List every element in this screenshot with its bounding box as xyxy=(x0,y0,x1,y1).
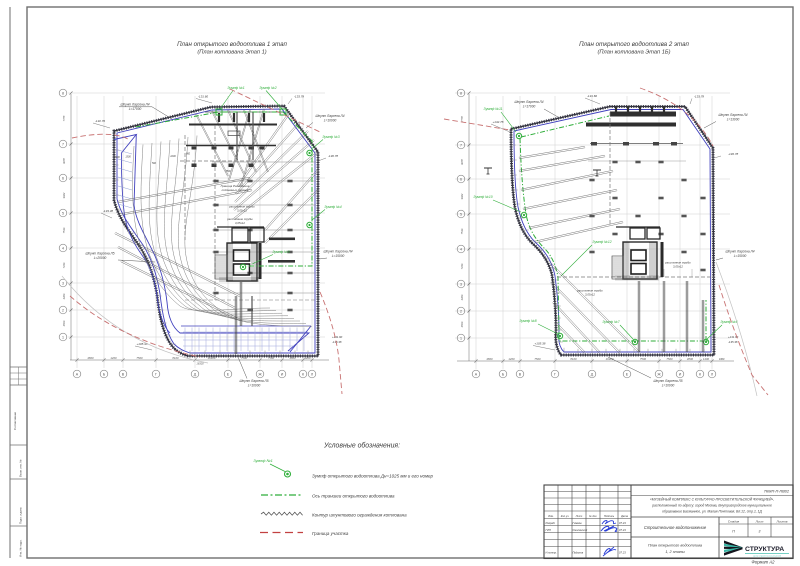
svg-text:1: 1 xyxy=(62,335,64,339)
svg-text:Зумпф №7: Зумпф №7 xyxy=(602,320,619,324)
svg-text:7788: 7788 xyxy=(62,115,66,121)
svg-text:+132.78: +132.78 xyxy=(493,120,504,124)
svg-text:-133.38: -133.38 xyxy=(103,209,114,213)
svg-text:4: 4 xyxy=(62,246,64,250)
svg-text:-135.38: -135.38 xyxy=(332,340,342,344)
svg-text:Согласовано: Согласовано xyxy=(13,412,17,430)
svg-text:подземных частей: подземных частей xyxy=(222,188,249,192)
svg-text:3,05х12: 3,05х12 xyxy=(235,221,245,225)
svg-text:8: 8 xyxy=(460,91,462,95)
svg-text:9088: 9088 xyxy=(460,159,464,165)
svg-text:И: И xyxy=(679,372,682,376)
svg-text:1, 2 этапы: 1, 2 этапы xyxy=(665,550,685,554)
svg-text:ГИП: ГИП xyxy=(546,528,551,532)
svg-text:-133.78: -133.78 xyxy=(294,95,305,99)
svg-text:7500: 7500 xyxy=(534,357,541,361)
svg-text:центр строительных решений: центр строительных решений xyxy=(753,555,781,558)
svg-text:07.23: 07.23 xyxy=(619,528,626,532)
svg-text:6: 6 xyxy=(62,176,64,180)
svg-text:4460: 4460 xyxy=(62,293,66,299)
svg-text:Подпись: Подпись xyxy=(604,514,615,518)
svg-text:L=15000: L=15000 xyxy=(734,254,747,258)
svg-text:+105.38: +105.38 xyxy=(137,342,148,346)
svg-text:1300: 1300 xyxy=(125,156,131,159)
svg-text:Инв. № подл.: Инв. № подл. xyxy=(19,539,23,557)
svg-text:1: 1 xyxy=(460,336,462,340)
svg-text:Зумпф №12: Зумпф №12 xyxy=(592,240,611,244)
svg-text:Стадия: Стадия xyxy=(728,519,740,523)
svg-text:07.23: 07.23 xyxy=(619,551,626,555)
svg-text:L=17000: L=17000 xyxy=(129,107,142,111)
svg-text:Строительное водопонижение: Строительное водопонижение xyxy=(644,525,707,530)
svg-text:Шпунт Ларсена Л4: Шпунт Ларсена Л4 xyxy=(514,100,543,104)
svg-text:СТРУКТУРА: СТРУКТУРА xyxy=(745,546,784,553)
svg-text:-130.78: -130.78 xyxy=(728,152,739,156)
svg-text:4800: 4800 xyxy=(460,321,464,327)
svg-text:500: 500 xyxy=(152,162,157,165)
svg-text:L=10000: L=10000 xyxy=(324,119,337,123)
svg-text:1400: 1400 xyxy=(703,357,710,361)
svg-text:7788: 7788 xyxy=(460,116,464,122)
svg-text:Зумпф №10: Зумпф №10 xyxy=(473,195,492,199)
svg-text:3: 3 xyxy=(62,281,64,285)
svg-text:-132.70: -132.70 xyxy=(95,119,106,123)
svg-text:6: 6 xyxy=(460,177,462,181)
svg-text:+105.38: +105.38 xyxy=(535,342,546,346)
svg-text:План открытого водоотлива 2 эт: План открытого водоотлива 2 этап xyxy=(579,41,689,48)
svg-text:Шпунт Ларсена Л4: Шпунт Ларсена Л4 xyxy=(120,103,149,107)
svg-text:Зумпф №1: Зумпф №1 xyxy=(253,459,272,463)
svg-text:Разраб.: Разраб. xyxy=(546,521,556,525)
svg-text:Зумпф №8: Зумпф №8 xyxy=(519,319,536,323)
svg-text:8100: 8100 xyxy=(172,356,179,360)
svg-text:7500: 7500 xyxy=(666,357,673,361)
svg-text:L=20000: L=20000 xyxy=(94,256,107,260)
svg-text:-131.60: -131.60 xyxy=(587,94,598,98)
svg-text:5: 5 xyxy=(460,212,462,216)
svg-text:900: 900 xyxy=(186,153,191,156)
svg-text:расположенный по адресу: город: расположенный по адресу: город Москва, В… xyxy=(651,504,772,508)
svg-text:L=10000: L=10000 xyxy=(662,384,675,388)
svg-text:3,05х12: 3,05х12 xyxy=(585,293,595,297)
svg-text:7500: 7500 xyxy=(136,356,143,360)
svg-text:Г: Г xyxy=(155,372,157,376)
svg-text:1200: 1200 xyxy=(508,357,515,361)
svg-text:7: 7 xyxy=(460,143,462,147)
svg-text:2: 2 xyxy=(460,309,462,313)
svg-text:4: 4 xyxy=(460,247,462,251)
svg-text:Условные обозначения:: Условные обозначения: xyxy=(323,442,400,450)
svg-text:Смолянской: Смолянской xyxy=(573,528,588,532)
svg-text:7440: 7440 xyxy=(460,263,464,269)
svg-text:Подп. и дата: Подп. и дата xyxy=(19,507,23,524)
svg-text:-135.38: -135.38 xyxy=(728,340,738,344)
svg-text:1200: 1200 xyxy=(110,356,117,360)
svg-text:7: 7 xyxy=(62,142,64,146)
svg-text:L=10000: L=10000 xyxy=(248,384,261,388)
svg-text:9088: 9088 xyxy=(62,158,66,164)
svg-text:-130.78: -130.78 xyxy=(328,154,339,158)
svg-text:9062: 9062 xyxy=(62,192,66,198)
svg-text:Зумпф №6: Зумпф №6 xyxy=(720,320,737,324)
svg-text:И: И xyxy=(281,372,284,376)
svg-text:2200: 2200 xyxy=(169,155,176,158)
svg-text:-131.60: -131.60 xyxy=(198,95,209,99)
svg-text:Шпунт Ларсена Л5: Шпунт Ларсена Л5 xyxy=(239,379,268,383)
svg-text:Дата: Дата xyxy=(620,514,628,518)
svg-text:Изм.: Изм. xyxy=(548,514,554,518)
svg-text:Лист: Лист xyxy=(575,514,584,518)
svg-text:образование Басманное, ул. Мал: образование Басманное, ул. Малая Почтова… xyxy=(662,510,762,514)
svg-text:4800: 4800 xyxy=(486,357,493,361)
svg-text:L=13000: L=13000 xyxy=(727,118,740,122)
svg-text:Зумпф №2: Зумпф №2 xyxy=(259,86,276,90)
svg-text:1900: 1900 xyxy=(114,156,120,159)
svg-text:07.23: 07.23 xyxy=(619,521,626,525)
svg-text:Шпунт Ларсена Л5: Шпунт Ларсена Л5 xyxy=(85,252,114,256)
svg-text:Зумпф открытого водоотлива Дн=: Зумпф открытого водоотлива Дн=1025 мм и … xyxy=(312,474,434,479)
svg-text:Гимеев: Гимеев xyxy=(573,521,583,525)
svg-text:9062: 9062 xyxy=(460,193,464,199)
svg-text:Н.контр.: Н.контр. xyxy=(546,551,558,555)
svg-text:Листов: Листов xyxy=(776,519,788,523)
svg-text:План открытого водоотлива 1 эт: План открытого водоотлива 1 этап xyxy=(177,41,287,48)
svg-text:Шпунт Ларсена Л4: Шпунт Ларсена Л4 xyxy=(725,250,754,254)
svg-text:7530: 7530 xyxy=(460,228,464,234)
svg-text:Зумпф №5: Зумпф №5 xyxy=(272,250,289,254)
svg-text:Формат А2: Формат А2 xyxy=(752,560,776,565)
svg-text:(План котлована Этап 1): (План котлована Этап 1) xyxy=(197,50,266,56)
svg-text:Кол.уч.: Кол.уч. xyxy=(561,514,570,518)
svg-text:1800: 1800 xyxy=(719,358,725,361)
svg-text:Зумпф №11: Зумпф №11 xyxy=(484,107,503,111)
svg-text:Граница участка: Граница участка xyxy=(312,531,349,536)
svg-text:Шпунт Ларсена Л4: Шпунт Ларсена Л4 xyxy=(315,114,344,118)
svg-text:Зумпф №4: Зумпф №4 xyxy=(324,205,341,209)
svg-text:7440: 7440 xyxy=(62,262,66,268)
svg-text:Шпунт Ларсена Л4: Шпунт Ларсена Л4 xyxy=(323,250,352,254)
svg-text:-133.78: -133.78 xyxy=(694,95,705,99)
svg-text:ТКМП-П-ПВ02: ТКМП-П-ПВ02 xyxy=(764,490,790,494)
svg-text:8: 8 xyxy=(62,91,64,95)
svg-text:L=15000: L=15000 xyxy=(332,254,345,258)
svg-text:2: 2 xyxy=(62,308,64,312)
svg-text:(План котлована Этап 1Б): (План котлована Этап 1Б) xyxy=(598,50,671,56)
svg-text:Шпунт Ларсена Л5: Шпунт Ларсена Л5 xyxy=(653,379,682,383)
svg-text:Взам. инв. №: Взам. инв. № xyxy=(19,460,23,477)
svg-text:План открытого водоотлива: План открытого водоотлива xyxy=(648,544,702,548)
svg-text:Г: Г xyxy=(554,372,556,376)
svg-text:Зумпф №3: Зумпф №3 xyxy=(322,135,339,139)
svg-text:4800: 4800 xyxy=(687,357,694,361)
svg-text:7500: 7500 xyxy=(225,170,231,173)
svg-text:4460: 4460 xyxy=(460,294,464,300)
svg-text:8100: 8100 xyxy=(570,357,577,361)
svg-text:4800: 4800 xyxy=(62,320,66,326)
svg-text:Лист: Лист xyxy=(755,519,764,523)
svg-text:«МУЗЕЙНЫЙ КОМПЛЕКС С КУЛЬТУРНО: «МУЗЕЙНЫЙ КОМПЛЕКС С КУЛЬТУРНО-ПРОСВЕТИТ… xyxy=(650,498,774,502)
svg-text:7530: 7530 xyxy=(62,227,66,233)
svg-text:16300: 16300 xyxy=(606,357,614,361)
svg-text:Шпунт Ларсена Л4: Шпунт Ларсена Л4 xyxy=(718,113,747,117)
svg-text:3: 3 xyxy=(460,282,462,286)
svg-text:5: 5 xyxy=(62,211,64,215)
svg-text:Ось траншеи открытого водоотли: Ось траншеи открытого водоотлива xyxy=(312,494,395,499)
svg-text:Пудалов: Пудалов xyxy=(573,551,584,555)
svg-text:№ док.: № док. xyxy=(589,514,598,518)
svg-text:3,05х12: 3,05х12 xyxy=(673,265,683,269)
svg-text:+131.60: +131.60 xyxy=(332,335,343,339)
svg-text:4800: 4800 xyxy=(87,356,94,360)
svg-text:3: 3 xyxy=(759,530,761,534)
svg-text:7500: 7500 xyxy=(640,357,647,361)
svg-text:3,05х12: 3,05х12 xyxy=(237,209,247,213)
svg-text:L=17000: L=17000 xyxy=(523,105,536,109)
svg-text:Контур шпунтового ограждения к: Контур шпунтового ограждения котлована xyxy=(312,513,407,518)
